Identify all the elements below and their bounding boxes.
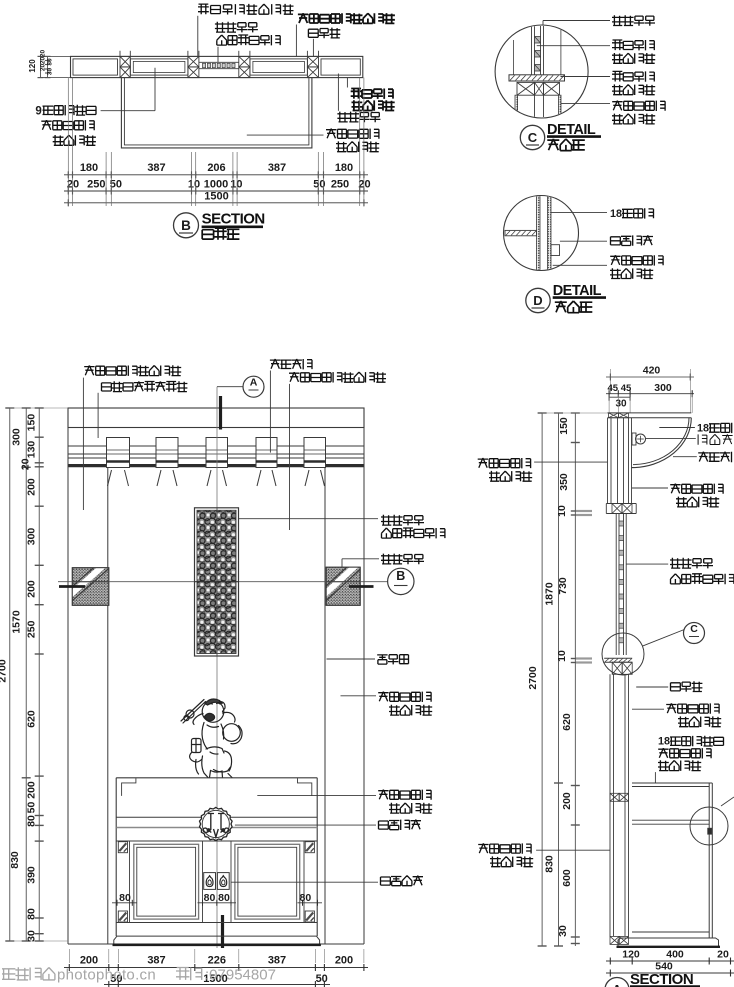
svg-text:150: 150 xyxy=(26,414,38,432)
svg-text:20: 20 xyxy=(39,50,46,58)
svg-text:226: 226 xyxy=(208,955,226,967)
svg-text:10: 10 xyxy=(556,505,568,517)
svg-text:387: 387 xyxy=(268,162,286,174)
svg-text:2700: 2700 xyxy=(527,666,539,690)
svg-text:B: B xyxy=(396,569,405,583)
svg-text:600: 600 xyxy=(561,869,573,887)
svg-text:30: 30 xyxy=(557,925,569,937)
svg-text:photophoto.cn: photophoto.cn xyxy=(57,967,156,984)
svg-text:D: D xyxy=(533,293,542,308)
svg-text:30: 30 xyxy=(47,68,54,76)
svg-text:80: 80 xyxy=(218,892,230,904)
svg-text:10: 10 xyxy=(556,650,568,662)
svg-text:A: A xyxy=(612,982,622,987)
svg-text:B: B xyxy=(181,218,191,233)
svg-text:387: 387 xyxy=(147,162,165,174)
svg-text:180: 180 xyxy=(80,162,98,174)
svg-text:830: 830 xyxy=(544,855,556,873)
svg-text:420: 420 xyxy=(643,365,661,377)
svg-text:387: 387 xyxy=(268,955,286,967)
svg-text:2700: 2700 xyxy=(0,659,9,683)
svg-text:1000: 1000 xyxy=(204,178,228,190)
svg-text:200: 200 xyxy=(26,478,38,496)
svg-text:250: 250 xyxy=(87,178,105,190)
svg-text:18: 18 xyxy=(610,208,622,220)
svg-text:1500: 1500 xyxy=(204,191,228,203)
svg-text:200: 200 xyxy=(561,792,573,810)
svg-text:830: 830 xyxy=(9,851,21,869)
svg-text:180: 180 xyxy=(335,162,353,174)
svg-text:20: 20 xyxy=(358,178,370,190)
svg-text:18: 18 xyxy=(658,736,670,748)
svg-text:SECTION: SECTION xyxy=(202,210,265,227)
svg-text:300: 300 xyxy=(11,428,23,446)
svg-text:80: 80 xyxy=(300,892,312,904)
svg-text:50: 50 xyxy=(316,973,328,985)
svg-text:18: 18 xyxy=(697,423,709,435)
svg-text:620: 620 xyxy=(26,710,38,728)
svg-text:20: 20 xyxy=(39,57,46,65)
svg-text:20: 20 xyxy=(20,458,32,470)
svg-text:250: 250 xyxy=(331,178,349,190)
svg-text:C: C xyxy=(528,130,538,145)
svg-text:A: A xyxy=(250,377,258,389)
svg-text:80: 80 xyxy=(119,892,131,904)
svg-text:80: 80 xyxy=(26,815,38,827)
svg-text:9: 9 xyxy=(35,106,41,118)
svg-text:10: 10 xyxy=(188,178,200,190)
svg-text:30: 30 xyxy=(615,399,627,410)
svg-text:200: 200 xyxy=(335,955,353,967)
svg-text::07954807: :07954807 xyxy=(205,967,276,984)
svg-text:C: C xyxy=(690,623,698,635)
svg-text:20: 20 xyxy=(67,178,79,190)
svg-text:387: 387 xyxy=(147,955,165,967)
svg-text:350: 350 xyxy=(558,473,570,491)
svg-text:130: 130 xyxy=(26,441,38,459)
svg-text:206: 206 xyxy=(207,162,225,174)
svg-text:300: 300 xyxy=(654,382,672,394)
svg-text:200: 200 xyxy=(26,781,38,799)
svg-text:SECTION: SECTION xyxy=(630,971,693,987)
svg-text:300: 300 xyxy=(26,528,38,546)
svg-text:390: 390 xyxy=(26,866,38,884)
svg-text:30: 30 xyxy=(47,58,54,66)
svg-text:45: 45 xyxy=(621,383,632,394)
svg-text:400: 400 xyxy=(666,949,684,961)
svg-text:120: 120 xyxy=(28,59,37,73)
svg-text:80: 80 xyxy=(26,908,38,920)
svg-text:20: 20 xyxy=(39,64,46,72)
svg-text:120: 120 xyxy=(622,949,640,961)
svg-text:20: 20 xyxy=(717,949,729,961)
svg-text:150: 150 xyxy=(558,417,570,435)
svg-text:250: 250 xyxy=(26,620,38,638)
svg-text:200: 200 xyxy=(80,955,98,967)
svg-text:1570: 1570 xyxy=(11,610,23,634)
svg-text:10: 10 xyxy=(230,178,242,190)
svg-text:45: 45 xyxy=(608,383,619,394)
svg-text:200: 200 xyxy=(26,580,38,598)
svg-text:30: 30 xyxy=(26,930,38,942)
svg-text:80: 80 xyxy=(204,892,216,904)
svg-text:50: 50 xyxy=(26,802,38,814)
svg-text:730: 730 xyxy=(557,577,569,595)
svg-text:1870: 1870 xyxy=(544,582,556,606)
svg-text:620: 620 xyxy=(561,713,573,731)
